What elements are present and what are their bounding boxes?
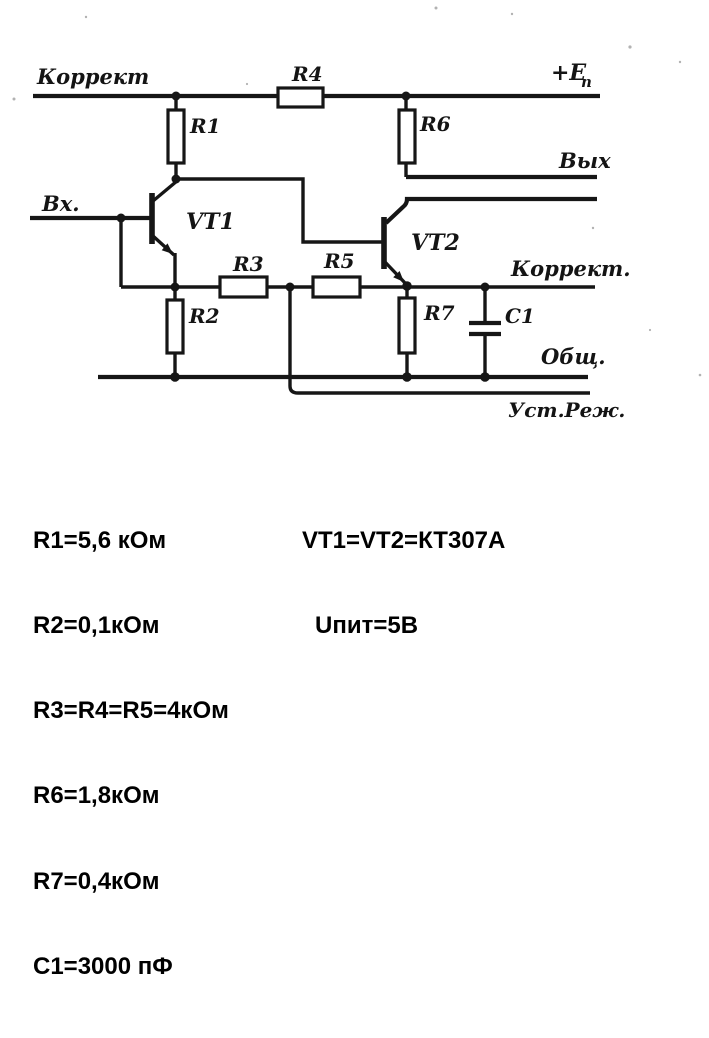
- schematic-page: Коррект R4 +E п R1 R6 Вых Вх. VT1 VT2 R3…: [0, 0, 709, 653]
- junction-dot: [402, 281, 412, 291]
- param-line: R3=R4=R5=4кОм: [33, 697, 229, 725]
- label-r3: R3: [232, 252, 264, 276]
- junction-dot: [171, 283, 180, 292]
- junction-dot: [481, 283, 490, 292]
- label-supply-subscript: п: [581, 73, 592, 91]
- label-r5: R5: [323, 249, 355, 273]
- label-c1: С1: [505, 304, 535, 328]
- resistor-r3: [220, 277, 267, 297]
- param-line: VT1=VT2=КТ307А: [302, 527, 505, 555]
- label-correct-right: Коррект.: [510, 256, 631, 281]
- junction-dot: [402, 92, 411, 101]
- resistor-r5: [313, 277, 360, 297]
- label-correct-top: Коррект: [36, 64, 149, 89]
- resistor-r2: [167, 300, 183, 353]
- vt2-collector-wire: [386, 199, 597, 223]
- label-r2: R2: [188, 304, 220, 328]
- junction-dot: [172, 175, 181, 184]
- label-mode-set: Уст.Реж.: [508, 398, 625, 422]
- resistor-r7: [399, 298, 415, 353]
- label-r1: R1: [189, 114, 221, 138]
- junction-dot: [117, 214, 126, 223]
- circuit-schematic: Коррект R4 +E п R1 R6 Вых Вх. VT1 VT2 R3…: [0, 0, 709, 460]
- resistor-r1: [168, 110, 184, 163]
- resistor-r6: [399, 110, 415, 163]
- junction-dot: [480, 372, 490, 382]
- label-vt2: VT2: [411, 230, 460, 256]
- junction-dot: [402, 372, 412, 382]
- param-line: R1=5,6 кОм: [33, 527, 229, 555]
- junction-dot: [170, 372, 180, 382]
- scan-speckles: [13, 7, 702, 377]
- param-line: Uпит=5В: [302, 612, 505, 640]
- junction-dot: [172, 92, 181, 101]
- param-line: C1=3000 пФ: [33, 953, 229, 981]
- wires: [30, 96, 600, 393]
- param-line: R6=1,8кОм: [33, 782, 229, 810]
- parameter-list-left: R1=5,6 кОм R2=0,1кОм R3=R4=R5=4кОм R6=1,…: [33, 470, 229, 1038]
- label-r6: R6: [419, 112, 451, 136]
- parameter-list-right: VT1=VT2=КТ307А Uпит=5В: [302, 470, 505, 697]
- vt1-collector-wire: [153, 181, 177, 201]
- label-input: Вх.: [41, 191, 80, 216]
- label-r4: R4: [291, 62, 323, 86]
- param-line: R7=0,4кОм: [33, 868, 229, 896]
- label-output: Вых: [558, 148, 611, 173]
- label-common: Общ.: [541, 344, 606, 369]
- param-line: R2=0,1кОм: [33, 612, 229, 640]
- label-r7: R7: [423, 301, 455, 325]
- label-vt1: VT1: [186, 209, 235, 235]
- resistor-r4: [278, 88, 323, 107]
- junction-dot: [286, 283, 295, 292]
